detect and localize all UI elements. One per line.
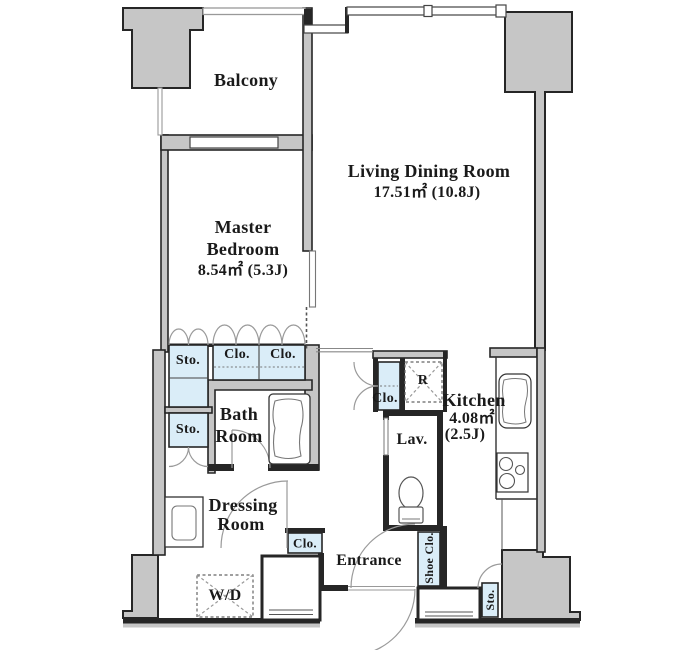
hall-closet-label: Clo. (372, 392, 398, 406)
kitchen-area-2: (2.5J) (445, 427, 485, 443)
column-top-right (505, 12, 572, 350)
balcony-label: Balcony (214, 71, 278, 89)
wall-bath-bottom-left (208, 464, 234, 471)
storage-upper-doors (169, 329, 208, 345)
ldk-window-left (304, 25, 348, 33)
meter-box-right (418, 588, 480, 620)
kitchen-area-1: 4.08㎡ (449, 411, 495, 427)
wall-bedroom-left (161, 135, 168, 352)
column-bottom-left (123, 555, 158, 618)
column-top-left (123, 8, 203, 88)
sliding-door (307, 251, 374, 352)
closet-right-label: Clo. (270, 348, 296, 362)
shoe-closet-label: Shoe Clo. (423, 532, 435, 583)
living-dining-area: 17.51㎡ (10.8J) (374, 185, 481, 201)
closet-left-label: Clo. (224, 348, 250, 362)
wall-bottom-right-gray (415, 624, 580, 628)
wall-bottom-left-gray (123, 624, 320, 628)
balcony-divider (158, 88, 162, 135)
floor-plan: Balcony Living Dining Room 17.51㎡ (10.8J… (0, 0, 700, 650)
wall-door-stub (320, 585, 348, 591)
master-bedroom-name-2: Bedroom (207, 240, 280, 258)
wall-kitchen-top (490, 348, 537, 357)
balcony-railing (203, 8, 305, 15)
refrigerator-label: R (418, 374, 428, 388)
storage-lower-label: Sto. (176, 423, 200, 437)
toilet-bowl (399, 477, 423, 509)
washer-dryer-label: W/D (209, 588, 242, 604)
wall-lav-right (437, 410, 443, 530)
window-mullion-1 (424, 6, 432, 17)
kitchen-name: Kitchen (442, 391, 505, 409)
closet-bifold-doors (213, 325, 305, 345)
master-bedroom-name-1: Master (215, 218, 272, 236)
wall-bath-bottom-right (268, 464, 319, 471)
storage-bottom-label: Sto. (484, 590, 496, 611)
lavatory-label: Lav. (397, 432, 428, 448)
walls-gray (153, 8, 545, 555)
wall-clo-r-top (373, 351, 447, 358)
lav-door (384, 418, 388, 455)
window-mullion-2 (496, 5, 506, 17)
wall-between-storages (165, 407, 212, 413)
master-bedroom-area: 8.54㎡ (5.3J) (198, 263, 288, 279)
toilet-tank (399, 507, 423, 523)
washbasin-bowl (172, 506, 196, 540)
bedroom-window (190, 137, 278, 148)
storage-lower-doors (169, 447, 208, 467)
wall-lower-left (153, 350, 165, 555)
dressing-room-name-2: Room (217, 515, 264, 533)
bedroom-sliding-door (310, 251, 316, 307)
storage-upper-label: Sto. (176, 354, 200, 368)
dressing-room-name-1: Dressing (208, 496, 277, 514)
wall-entrance-east (440, 526, 447, 590)
wall-kitchen-right (537, 348, 545, 552)
wall-lav-left-b (383, 455, 389, 531)
entrance-door-outward (348, 589, 415, 650)
bath-room-name-2: Room (215, 427, 262, 445)
column-bottom-right (502, 550, 580, 620)
wall-lav-top (383, 410, 443, 416)
living-dining-name: Living Dining Room (348, 162, 510, 180)
entrance-threshold (348, 587, 415, 591)
wall-bedroom-right (303, 8, 312, 251)
entrance-closet-label: Clo. (293, 537, 317, 550)
entrance-label: Entrance (336, 553, 402, 569)
bath-room-name-1: Bath (220, 405, 258, 423)
windows (158, 5, 506, 148)
